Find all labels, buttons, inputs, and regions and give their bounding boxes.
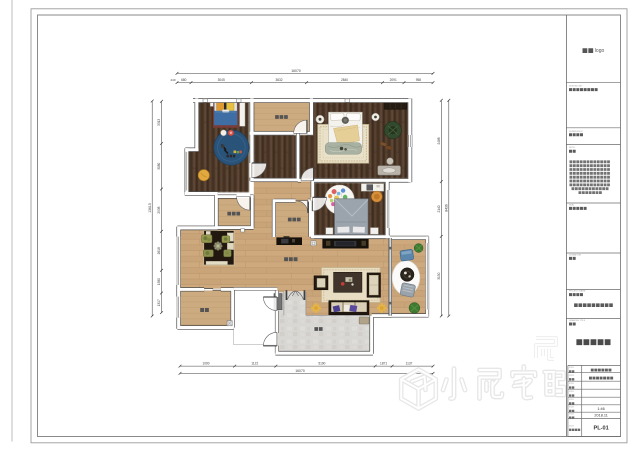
svg-text:DESIGN UNIT: DESIGN UNIT [569, 86, 583, 88]
svg-text:13615: 13615 [148, 203, 152, 213]
svg-text:XXXX: XXXX [569, 383, 575, 385]
svg-text:1580: 1580 [157, 278, 161, 285]
svg-text:XXXX: XXXX [569, 367, 575, 369]
svg-text:240: 240 [170, 78, 175, 82]
svg-text:1090: 1090 [202, 362, 209, 366]
svg-text:2488: 2488 [437, 137, 441, 144]
svg-text:XXXX: XXXX [569, 391, 575, 393]
svg-text:SUPERVISOR: SUPERVISOR [569, 131, 583, 133]
svg-text:3045: 3045 [218, 78, 225, 82]
svg-text:DRAWING TITLE: DRAWING TITLE [569, 319, 586, 322]
svg-text:PL-01: PL-01 [593, 426, 608, 432]
svg-text:XXXX: XXXX [569, 425, 575, 427]
svg-text:3632: 3632 [275, 78, 282, 82]
svg-text:2091: 2091 [390, 78, 397, 82]
svg-text:8436: 8436 [445, 204, 449, 212]
svg-text:XXXX: XXXX [569, 413, 575, 415]
svg-text:SEAL: SEAL [569, 203, 575, 206]
svg-text:3313: 3313 [157, 119, 161, 126]
svg-text:XXXX: XXXX [569, 399, 575, 401]
svg-text:2618: 2618 [157, 247, 161, 254]
svg-text:XXXX: XXXX [569, 375, 575, 377]
svg-text:1317: 1317 [157, 299, 161, 306]
svg-text:680: 680 [181, 78, 187, 82]
svg-text:3130: 3130 [437, 272, 441, 279]
svg-text:3080: 3080 [157, 162, 161, 169]
svg-text:SIGNATURE: SIGNATURE [569, 253, 582, 256]
svg-text:NOTE: NOTE [569, 147, 575, 149]
svg-text:16070: 16070 [295, 369, 305, 373]
svg-text:2840: 2840 [341, 78, 348, 82]
svg-text:958: 958 [416, 78, 422, 82]
svg-text:2018.11: 2018.11 [594, 414, 607, 418]
svg-text:1:46: 1:46 [597, 407, 604, 411]
svg-text:logo: logo [595, 48, 605, 54]
svg-text:XXXX: XXXX [569, 407, 575, 409]
svg-text:1871: 1871 [380, 362, 387, 366]
svg-text:1122: 1122 [251, 362, 258, 366]
svg-text:1137: 1137 [406, 362, 413, 366]
svg-text:2938: 2938 [157, 206, 161, 213]
svg-text:5190: 5190 [318, 362, 325, 366]
svg-text:2140: 2140 [437, 205, 441, 212]
svg-text:16070: 16070 [291, 69, 301, 73]
svg-text:PROJECT NAME: PROJECT NAME [569, 290, 586, 293]
